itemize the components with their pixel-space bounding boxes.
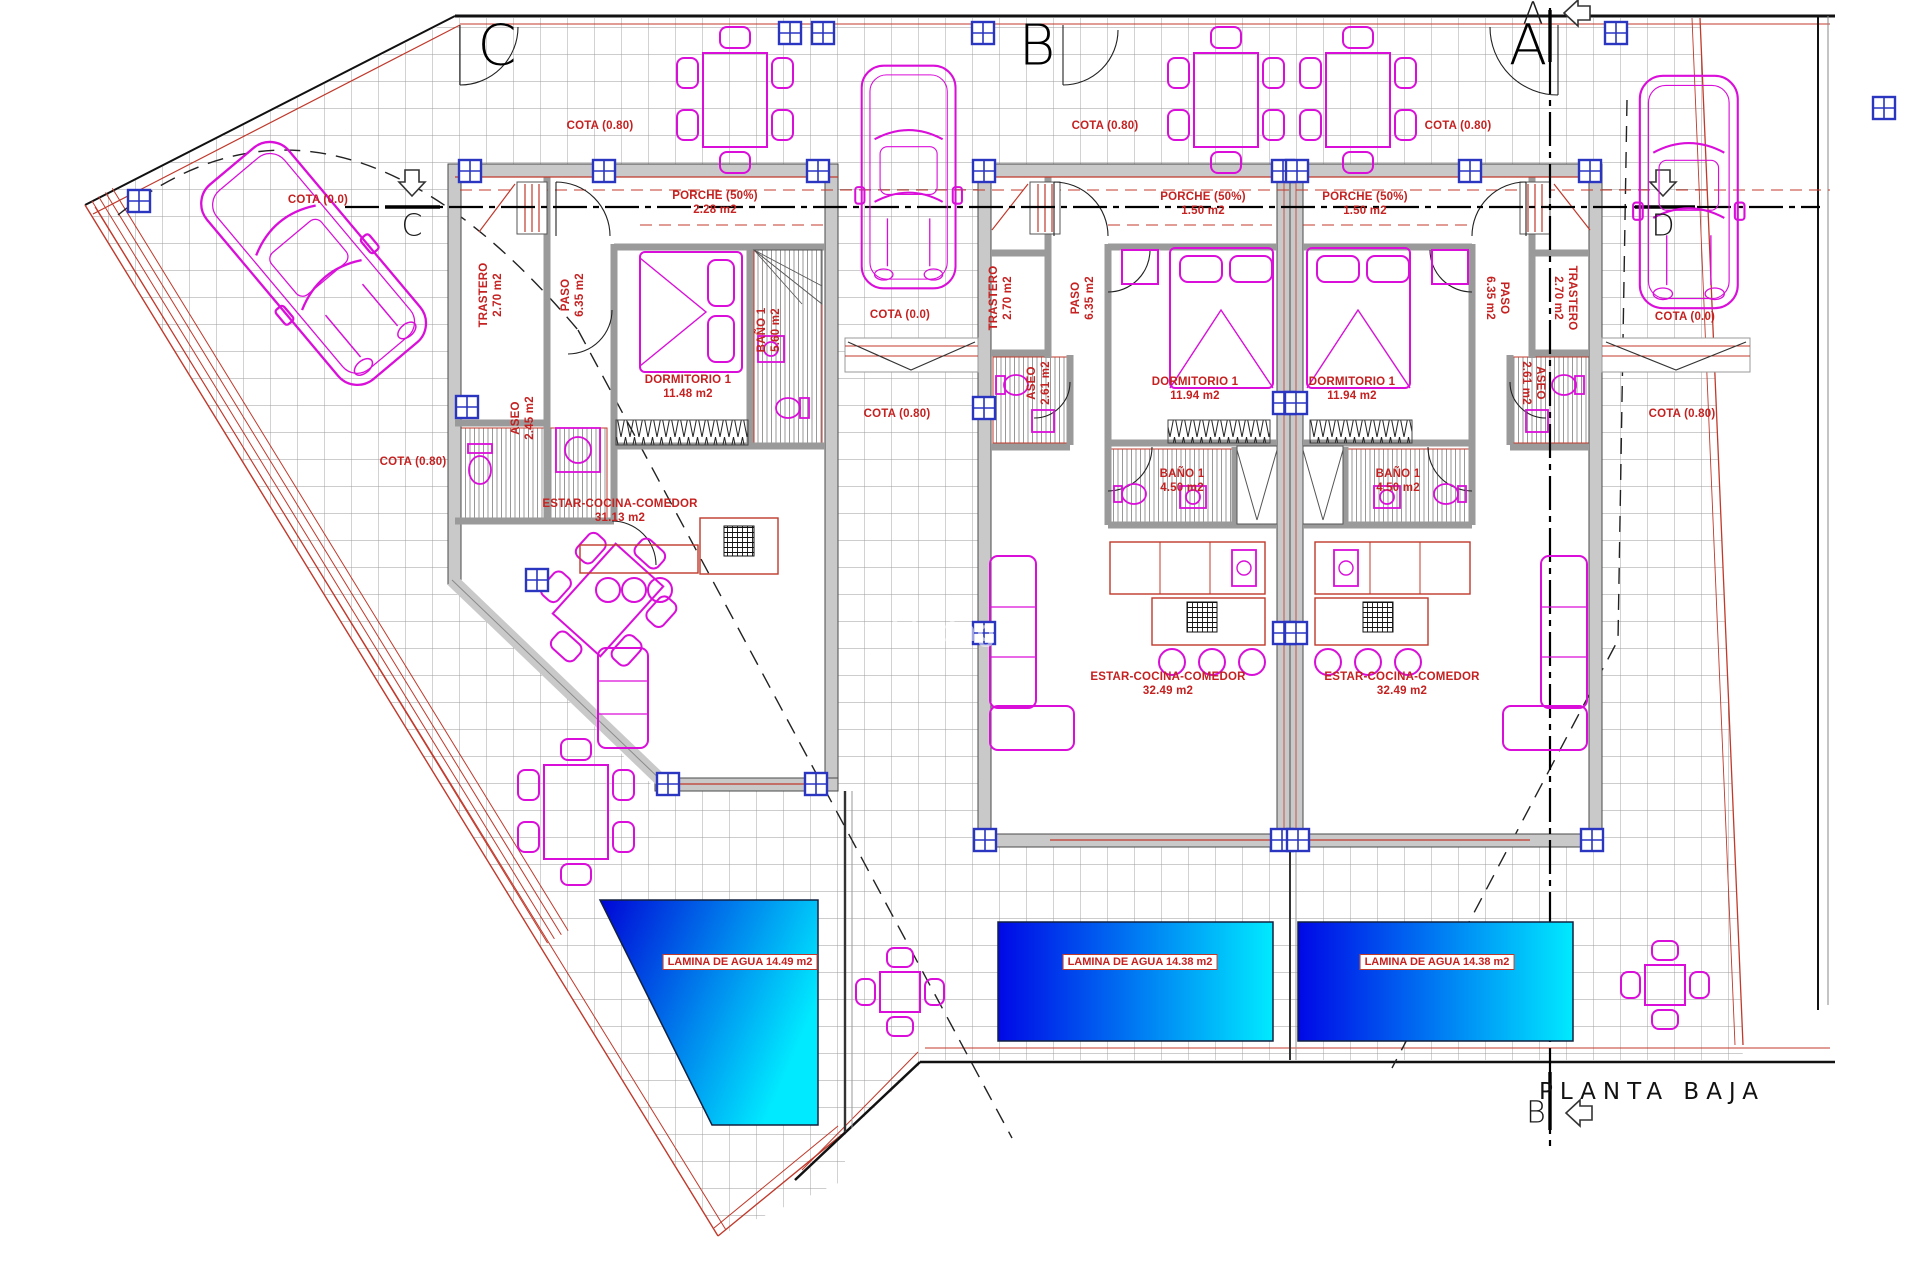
room-name: PORCHE (50%): [1322, 191, 1407, 205]
cota-label: COTA (0.80): [1072, 120, 1139, 134]
room-area: 31.13 m2: [542, 512, 697, 526]
cota-label: COTA (0.80): [1425, 120, 1492, 134]
room-name: ASEO: [1026, 361, 1040, 405]
room-label-porche-b: PORCHE (50%) 1.50 m2: [1160, 191, 1245, 219]
room-label-dormitorio-a: DORMITORIO 1 11.94 m2: [1309, 376, 1396, 404]
cota-label: COTA (0.80): [380, 456, 447, 470]
section-marker-c: C: [402, 209, 423, 244]
room-area: 11.94 m2: [1309, 390, 1396, 404]
floor-plan-canvas: y Listing C B A A B C D PLANTA BAJA COTA…: [0, 0, 1920, 1280]
room-area: 2.45 m2: [524, 396, 538, 440]
section-marker-d: D: [1651, 209, 1674, 244]
room-area: 1.50 m2: [1322, 205, 1407, 219]
room-area: 4.50 m2: [1376, 482, 1421, 496]
room-area: 2.28 m2: [672, 204, 757, 218]
room-name: PASO: [1070, 276, 1084, 320]
room-name: ASEO: [1532, 361, 1546, 405]
room-name: PORCHE (50%): [672, 190, 757, 204]
cota-label: COTA (0.80): [567, 120, 634, 134]
room-area: 6.35 m2: [1482, 276, 1496, 320]
room-label-dormitorio-b: DORMITORIO 1 11.94 m2: [1152, 376, 1239, 404]
room-label-aseo-a: ASEO 2.61 m2: [1518, 361, 1546, 405]
room-name: PASO: [560, 273, 574, 317]
room-name: TRASTERO: [988, 266, 1002, 331]
section-marker-a: A: [1523, 0, 1544, 32]
room-label-estar-c: ESTAR-COCINA-COMEDOR 31.13 m2: [542, 498, 697, 526]
room-area: 32.49 m2: [1324, 685, 1479, 699]
room-label-trastero-b: TRASTERO 2.70 m2: [988, 266, 1016, 331]
room-name: BAÑO 1: [1376, 468, 1421, 482]
room-label-trastero-c: TRASTERO 2.70 m2: [478, 263, 506, 328]
unit-letter-villa-c: C: [477, 14, 516, 79]
room-label-paso-c: PASO 6.35 m2: [560, 273, 588, 317]
room-label-aseo-b: ASEO 2.61 m2: [1026, 361, 1054, 405]
room-label-aseo-c: ASEO 2.45 m2: [510, 396, 538, 440]
room-label-paso-b: PASO 6.35 m2: [1070, 276, 1098, 320]
pool-label-c: LAMINA DE AGUA 14.49 m2: [663, 954, 818, 970]
cota-label: COTA (0.0): [288, 194, 348, 208]
room-label-bano-a: BAÑO 1 4.50 m2: [1376, 468, 1421, 496]
room-name: PORCHE (50%): [1160, 191, 1245, 205]
room-area: 2.61 m2: [1518, 361, 1532, 405]
page-title: PLANTA BAJA: [1539, 1079, 1765, 1105]
room-area: 2.61 m2: [1040, 361, 1054, 405]
room-label-porche-a: PORCHE (50%) 1.50 m2: [1322, 191, 1407, 219]
room-label-estar-b: ESTAR-COCINA-COMEDOR 32.49 m2: [1090, 671, 1245, 699]
room-area: 2.70 m2: [1550, 266, 1564, 331]
room-label-porche-c: PORCHE (50%) 2.28 m2: [672, 190, 757, 218]
room-area: 32.49 m2: [1090, 685, 1245, 699]
room-area: 5.60 m2: [770, 308, 784, 353]
pool-villa-b: [998, 922, 1273, 1041]
room-name: DORMITORIO 1: [1309, 376, 1396, 390]
room-name: PASO: [1496, 276, 1510, 320]
room-name: ESTAR-COCINA-COMEDOR: [1324, 671, 1479, 685]
room-name: ESTAR-COCINA-COMEDOR: [542, 498, 697, 512]
room-area: 2.70 m2: [492, 263, 506, 328]
room-area: 6.35 m2: [1084, 276, 1098, 320]
room-area: 4.50 m2: [1160, 482, 1205, 496]
unit-letter-villa-b: B: [1019, 14, 1056, 79]
room-area: 11.94 m2: [1152, 390, 1239, 404]
room-label-trastero-a: TRASTERO 2.70 m2: [1550, 266, 1578, 331]
room-name: ESTAR-COCINA-COMEDOR: [1090, 671, 1245, 685]
pool-label-b: LAMINA DE AGUA 14.38 m2: [1063, 954, 1218, 970]
room-label-bano-b: BAÑO 1 4.50 m2: [1160, 468, 1205, 496]
room-name: TRASTERO: [478, 263, 492, 328]
room-label-estar-a: ESTAR-COCINA-COMEDOR 32.49 m2: [1324, 671, 1479, 699]
room-name: BAÑO 1: [1160, 468, 1205, 482]
room-name: DORMITORIO 1: [1152, 376, 1239, 390]
room-area: 6.35 m2: [574, 273, 588, 317]
room-area: 1.50 m2: [1160, 205, 1245, 219]
room-name: TRASTERO: [1564, 266, 1578, 331]
cota-label: COTA (0.80): [1649, 408, 1716, 422]
room-name: DORMITORIO 1: [645, 374, 732, 388]
cota-label: COTA (0.0): [870, 309, 930, 323]
pool-villa-a: [1298, 922, 1573, 1041]
room-label-bano-c: BAÑO 1 5.60 m2: [756, 308, 784, 353]
cota-label: COTA (0.80): [864, 408, 931, 422]
room-name: ASEO: [510, 396, 524, 440]
room-label-dormitorio-c: DORMITORIO 1 11.48 m2: [645, 374, 732, 402]
room-area: 11.48 m2: [645, 388, 732, 402]
room-area: 2.70 m2: [1002, 266, 1016, 331]
room-name: BAÑO 1: [756, 308, 770, 353]
pools: [600, 900, 1573, 1125]
pool-label-a: LAMINA DE AGUA 14.38 m2: [1360, 954, 1515, 970]
room-label-paso-a: PASO 6.35 m2: [1482, 276, 1510, 320]
cota-label: COTA (0.0): [1655, 311, 1715, 325]
